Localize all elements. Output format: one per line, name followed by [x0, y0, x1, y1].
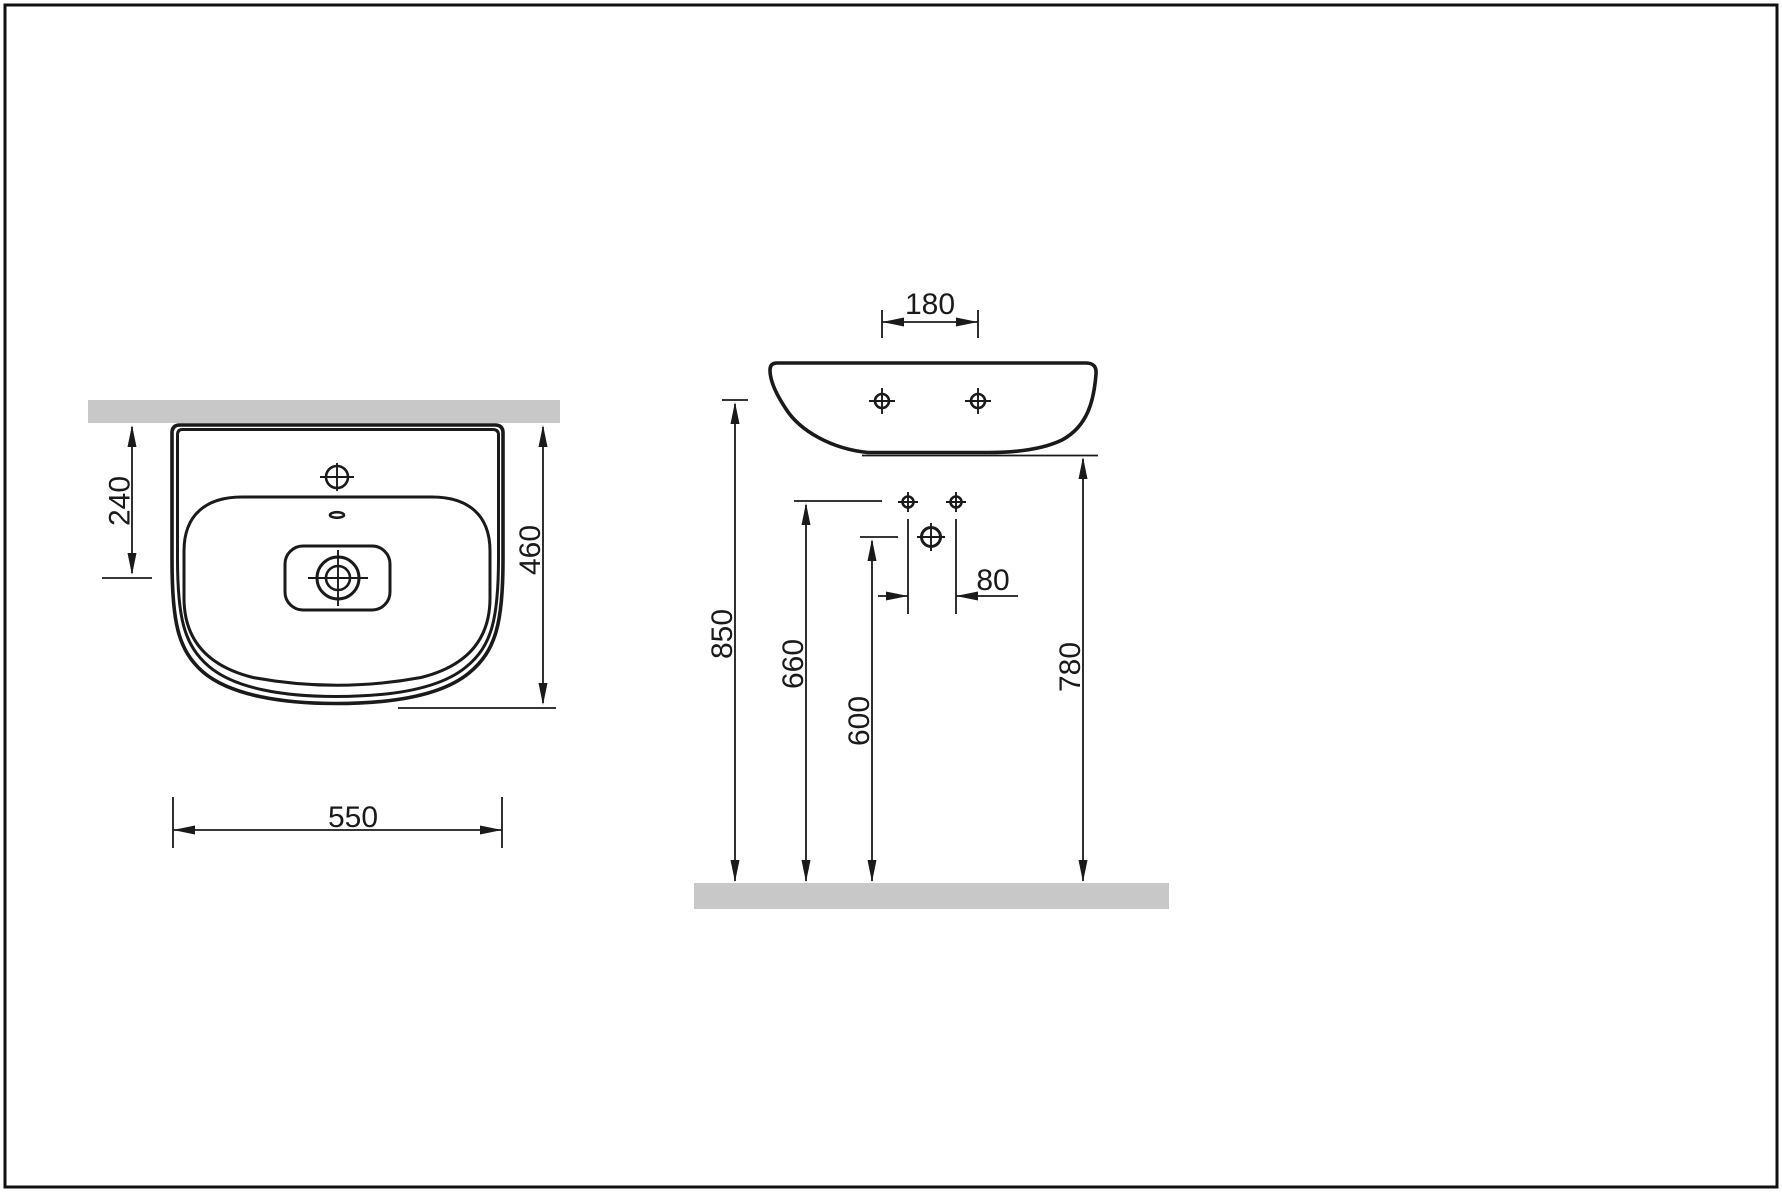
- front-view: 180: [694, 288, 1169, 909]
- arrow-down: [868, 860, 877, 882]
- arrow-down: [802, 860, 811, 882]
- basin-profile-outline: [770, 363, 1096, 453]
- drawing-canvas: 240 460 550: [0, 0, 1782, 1192]
- dim-label-780: 780: [1054, 642, 1087, 692]
- dim-underside-height: 780: [1054, 457, 1088, 882]
- dim-label-80: 80: [976, 564, 1009, 597]
- dim-drain-height: 600: [843, 537, 898, 882]
- arrow-up: [1079, 457, 1088, 479]
- dim-label-180: 180: [905, 288, 955, 321]
- tap-hole-right-marker: [965, 388, 991, 414]
- floor-surface: [694, 883, 1169, 909]
- technical-drawing: 240 460 550: [0, 0, 1782, 1192]
- dim-fixing-holes-height: 660: [777, 501, 882, 882]
- arrow-down: [539, 683, 548, 705]
- drain-marker: [308, 550, 368, 606]
- arrow-up: [802, 503, 811, 525]
- wall-surface: [88, 400, 560, 423]
- tap-hole-marker: [320, 463, 354, 491]
- overflow-slot: [330, 512, 344, 518]
- dim-rim-height: 850: [706, 400, 748, 882]
- dim-label-460: 460: [514, 525, 547, 575]
- dim-fixing-hole-spacing: 80: [878, 519, 1018, 614]
- arrow-down: [731, 860, 740, 882]
- dim-label-240: 240: [104, 476, 137, 526]
- arrow-left: [173, 826, 195, 835]
- arrow-right: [886, 592, 908, 601]
- arrow-left: [882, 318, 904, 327]
- dim-wall-to-drain: 240: [102, 425, 152, 578]
- arrow-up: [539, 425, 548, 447]
- drain-outlet-marker: [917, 523, 945, 551]
- arrow-left: [956, 592, 978, 601]
- dim-width: 550: [173, 797, 502, 848]
- arrow-down: [1079, 860, 1088, 882]
- arrow-up: [731, 402, 740, 424]
- dim-tap-hole-spacing: 180: [882, 288, 978, 338]
- dim-label-660: 660: [777, 639, 810, 689]
- arrow-down: [128, 553, 137, 575]
- tap-hole-left-marker: [869, 388, 895, 414]
- dim-label-550: 550: [328, 801, 378, 834]
- plan-view: 240 460 550: [88, 400, 560, 848]
- arrow-right: [480, 826, 502, 835]
- dim-label-600: 600: [843, 696, 876, 746]
- arrow-up: [128, 425, 137, 447]
- fixing-hole-right-marker: [946, 492, 966, 512]
- arrow-right: [956, 318, 978, 327]
- arrow-up: [868, 539, 877, 561]
- dim-label-850: 850: [706, 609, 739, 659]
- fixing-hole-left-marker: [898, 492, 918, 512]
